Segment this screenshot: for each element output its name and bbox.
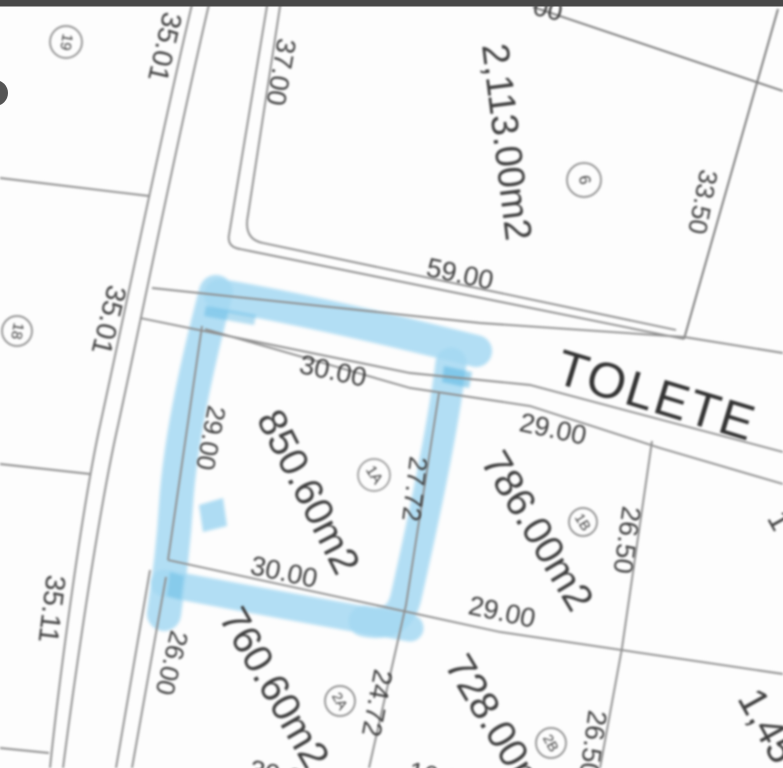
svg-text:18: 18 <box>7 321 27 340</box>
svg-text:19: 19 <box>56 32 76 51</box>
